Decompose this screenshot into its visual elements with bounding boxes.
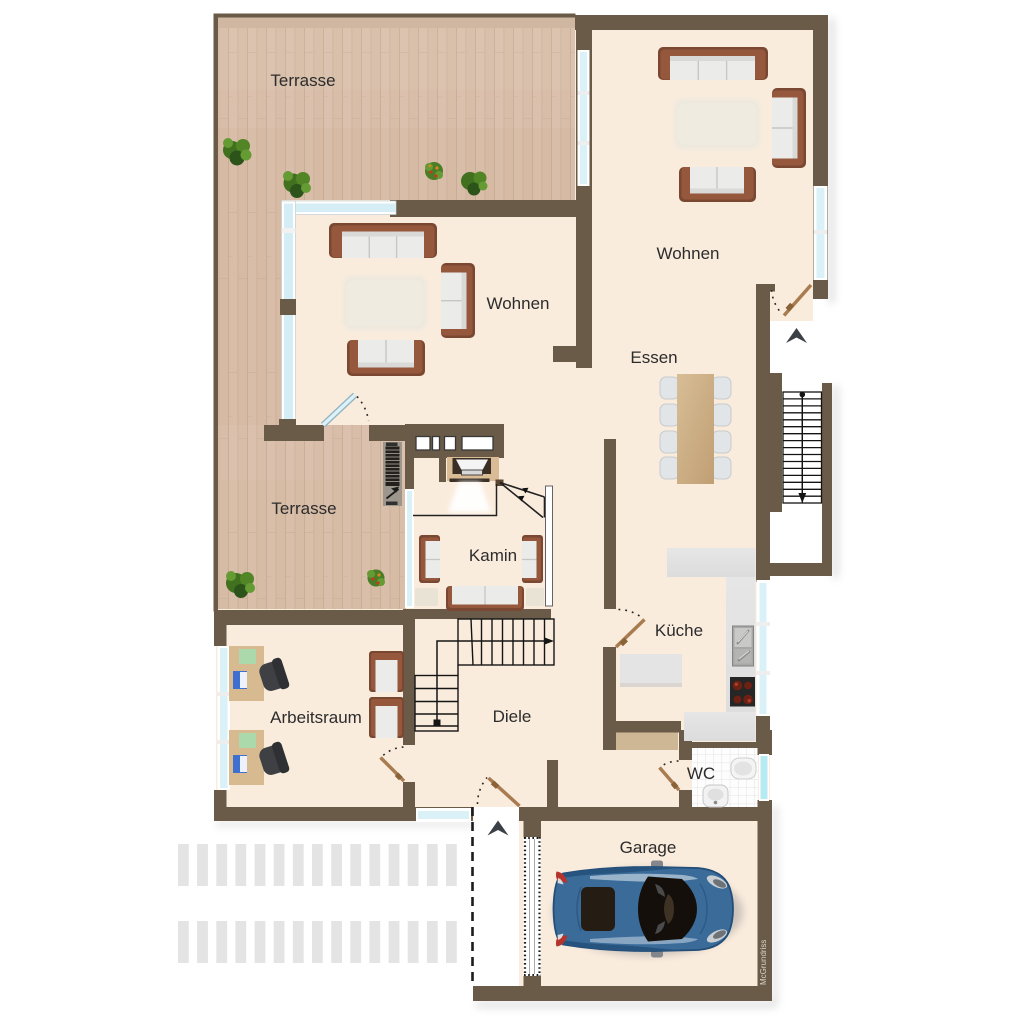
svg-text:Küche: Küche	[655, 621, 703, 640]
svg-text:Arbeitsraum: Arbeitsraum	[270, 708, 362, 727]
svg-text:Terrasse: Terrasse	[270, 71, 335, 90]
svg-text:McGrundriss: McGrundriss	[759, 940, 768, 985]
svg-text:WC: WC	[687, 764, 715, 783]
svg-text:Kamin: Kamin	[469, 546, 517, 565]
svg-text:Essen: Essen	[630, 348, 677, 367]
svg-text:Wohnen: Wohnen	[656, 244, 719, 263]
svg-text:Wohnen: Wohnen	[486, 294, 549, 313]
svg-text:Garage: Garage	[620, 838, 677, 857]
svg-text:Diele: Diele	[493, 707, 532, 726]
svg-text:Terrasse: Terrasse	[271, 499, 336, 518]
